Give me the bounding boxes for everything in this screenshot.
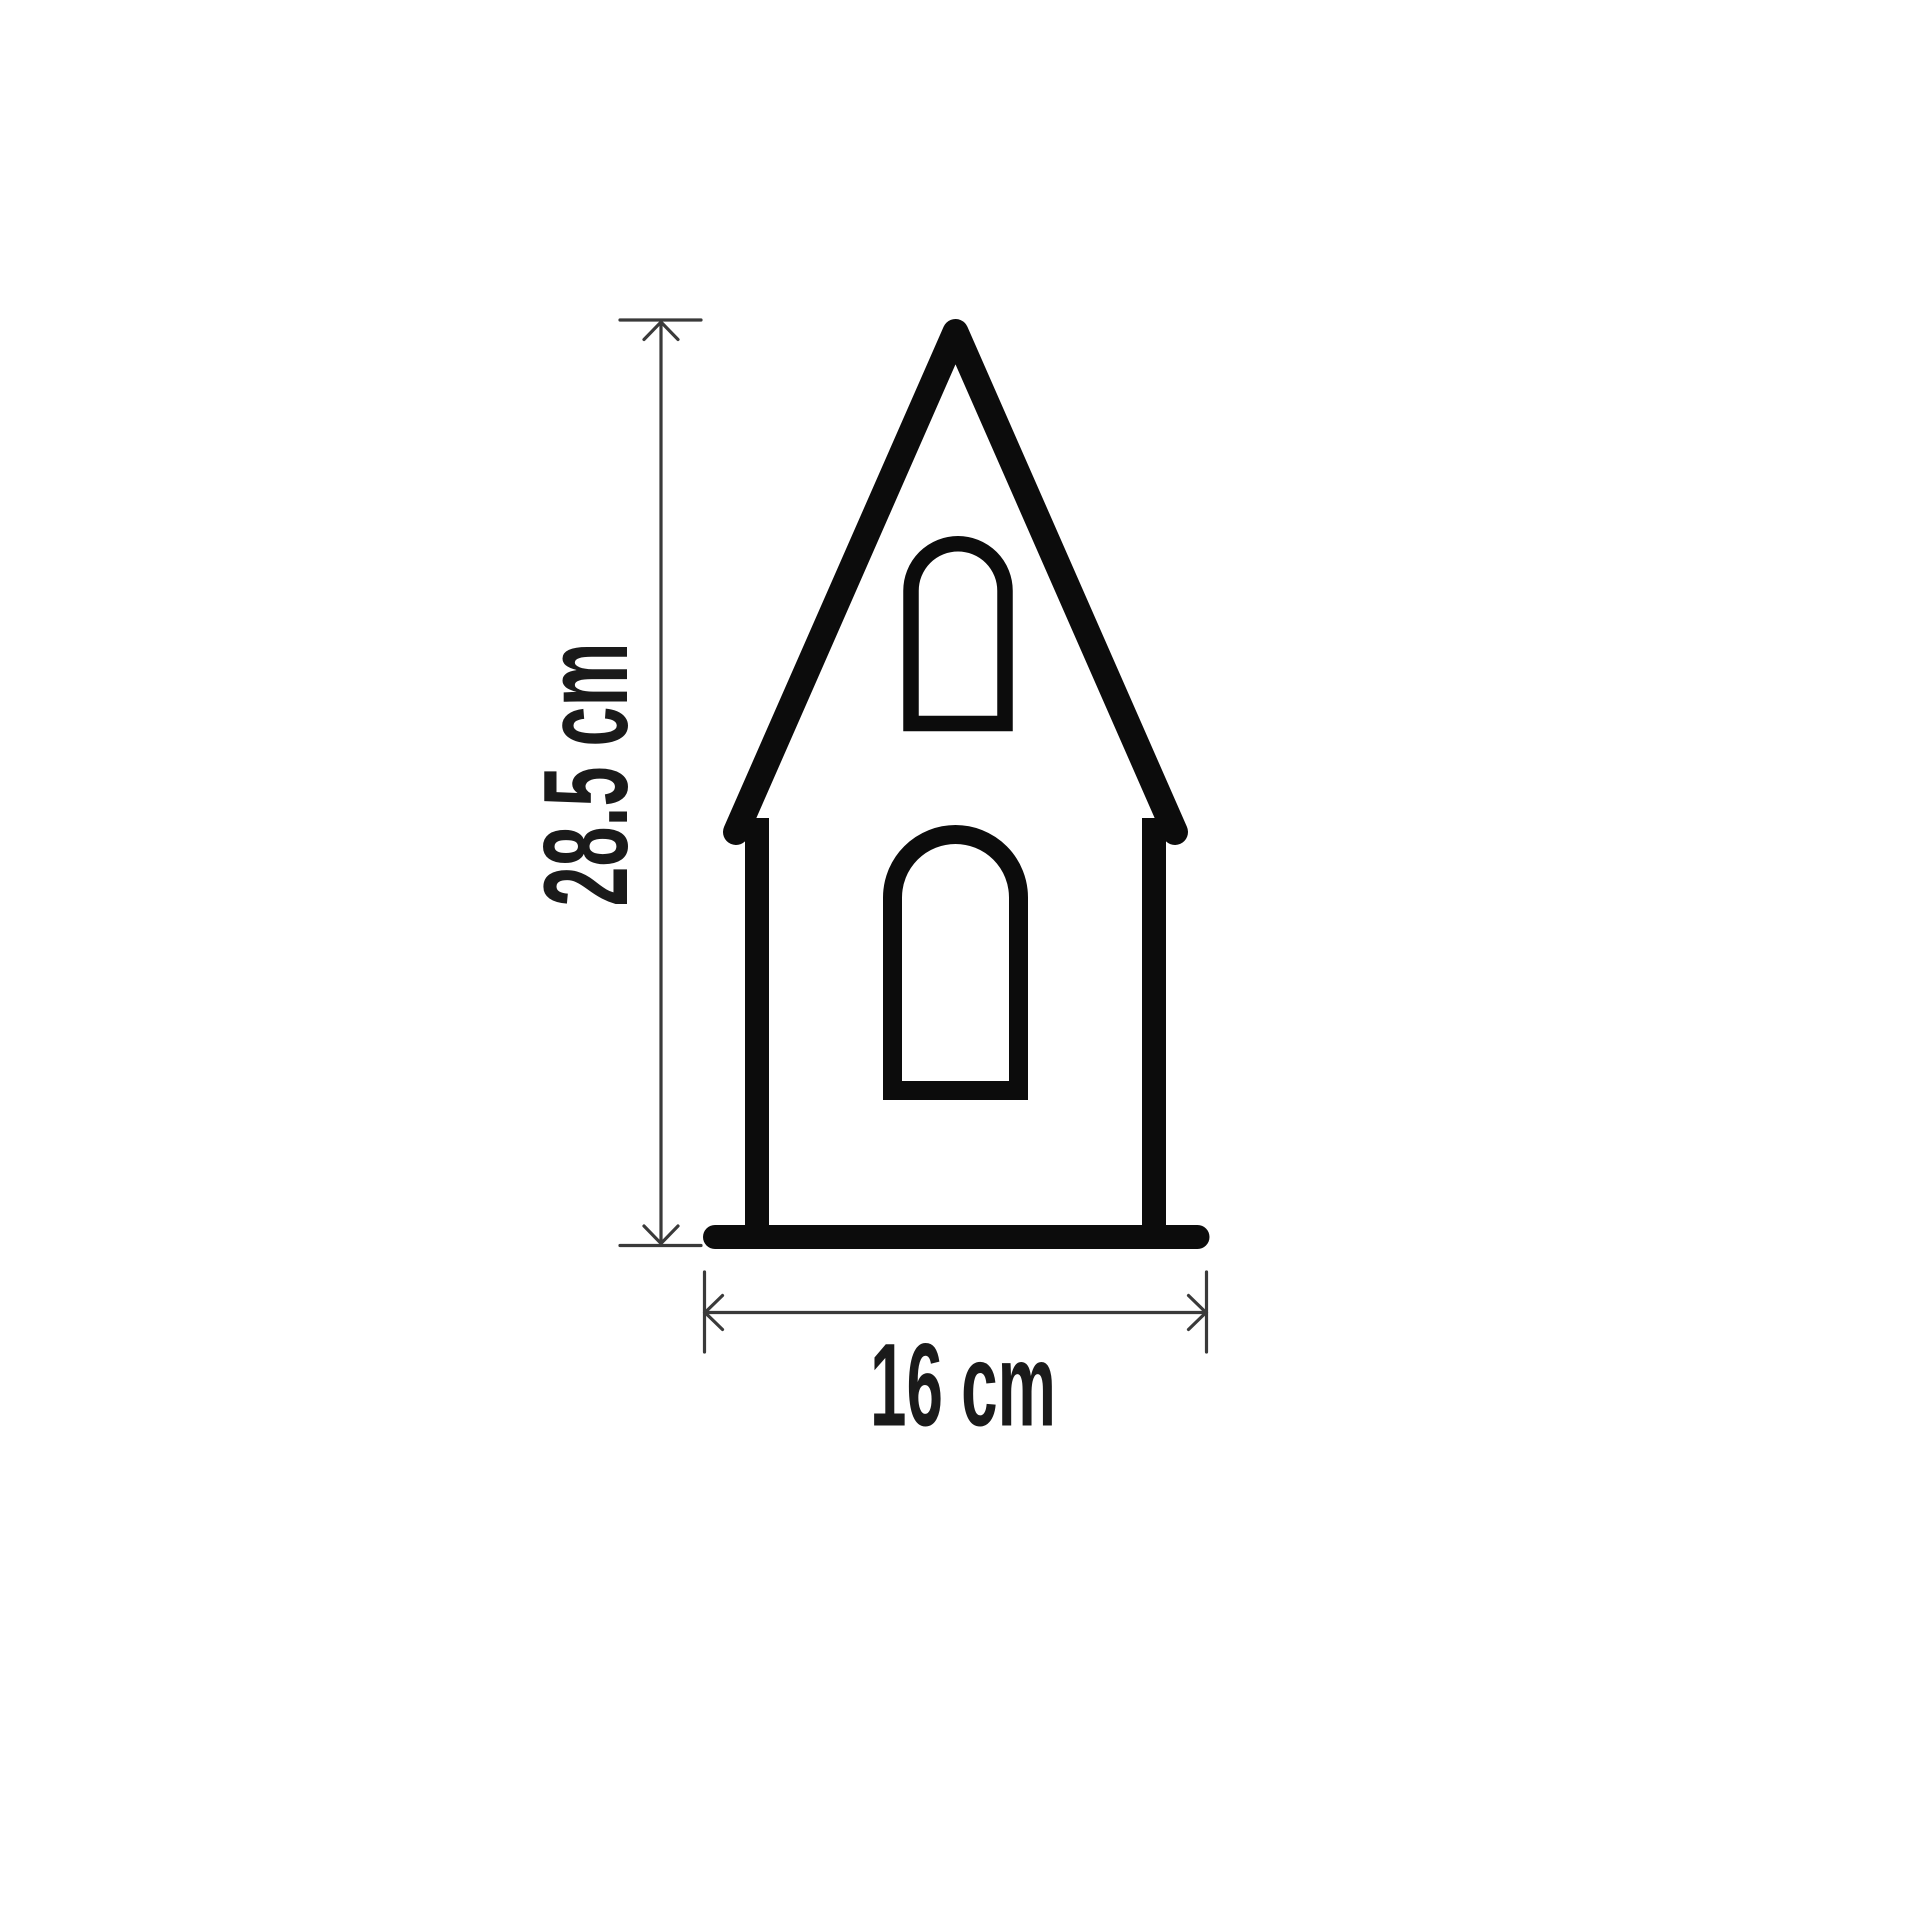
svg-text:28.5 cm: 28.5 cm	[519, 643, 653, 907]
svg-text:16 cm: 16 cm	[870, 1320, 1056, 1452]
